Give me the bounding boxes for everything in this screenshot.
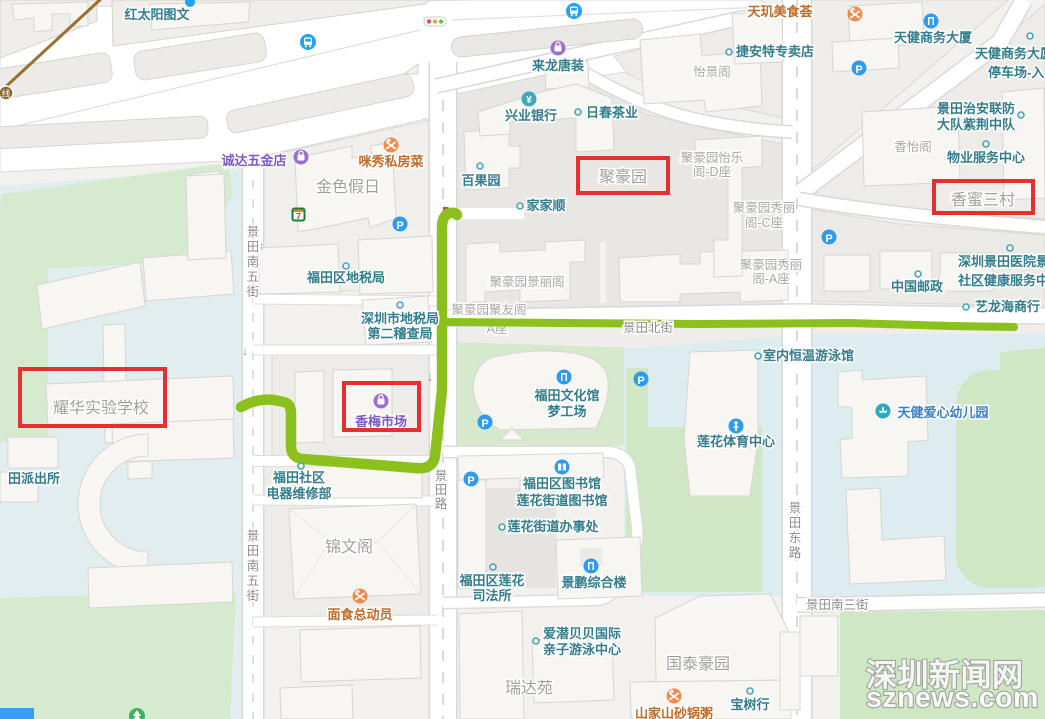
svg-text:福田区地税局: 福田区地税局 xyxy=(306,270,385,285)
svg-text:P: P xyxy=(481,418,488,430)
svg-text:聚豪园秀丽: 聚豪园秀丽 xyxy=(740,257,803,272)
svg-text:天健商务大厦: 天健商务大厦 xyxy=(894,30,973,45)
svg-text:景田东路: 景田东路 xyxy=(789,501,802,560)
svg-text:福田文化馆: 福田文化馆 xyxy=(533,388,599,403)
svg-text:↓: ↓ xyxy=(427,369,434,384)
svg-text:P: P xyxy=(396,220,403,232)
svg-text:电器维修部: 电器维修部 xyxy=(266,486,331,501)
svg-text:捷安特专卖店: 捷安特专卖店 xyxy=(736,44,814,59)
svg-text:景田路: 景田路 xyxy=(435,469,448,511)
svg-text:莲花街道图书馆: 莲花街道图书馆 xyxy=(516,493,607,508)
svg-text:P: P xyxy=(825,233,832,245)
svg-text:大队紫荆中队: 大队紫荆中队 xyxy=(937,117,1016,132)
svg-text:sznews.com: sznews.com xyxy=(866,682,1039,714)
svg-text:社区健康服务中: 社区健康服务中 xyxy=(957,273,1045,288)
svg-text:兴业银行: 兴业银行 xyxy=(505,108,557,123)
svg-text:百果园: 百果园 xyxy=(461,173,500,188)
svg-text:¥: ¥ xyxy=(526,95,532,106)
svg-text:耀华实验学校: 耀华实验学校 xyxy=(53,399,149,417)
svg-text:怡景阁: 怡景阁 xyxy=(693,65,731,79)
svg-text:诚达五金店: 诚达五金店 xyxy=(221,153,286,168)
svg-text:景田南五街: 景田南五街 xyxy=(247,225,260,299)
svg-text:聚豪园: 聚豪园 xyxy=(599,167,647,186)
svg-text:宝树行: 宝树行 xyxy=(730,697,769,712)
svg-text:中国邮政: 中国邮政 xyxy=(891,279,944,294)
svg-text:深圳市地税局: 深圳市地税局 xyxy=(361,311,439,326)
svg-text:停车场-入: 停车场-入 xyxy=(988,65,1044,80)
svg-text:P: P xyxy=(637,375,644,387)
svg-text:阁-D座: 阁-D座 xyxy=(693,164,731,179)
svg-text:深圳景田医院景: 深圳景田医院景 xyxy=(958,254,1045,269)
svg-text:田派出所: 田派出所 xyxy=(8,471,60,486)
svg-text:阁-A座: 阁-A座 xyxy=(752,271,790,286)
svg-text:第二稽查局: 第二稽查局 xyxy=(367,326,432,341)
svg-text:亲子游泳中心: 亲子游泳中心 xyxy=(543,642,621,657)
svg-text:景鹏综合楼: 景鹏综合楼 xyxy=(561,575,626,590)
svg-text:聚豪园聚友阁: 聚豪园聚友阁 xyxy=(451,302,526,317)
svg-text:香怡阁: 香怡阁 xyxy=(894,140,932,154)
svg-text:锦文阁: 锦文阁 xyxy=(325,538,373,556)
svg-text:P: P xyxy=(855,64,862,76)
svg-text:线: 线 xyxy=(1,88,10,99)
svg-text:家家顺: 家家顺 xyxy=(526,198,565,213)
svg-text:爱潜贝贝国际: 爱潜贝贝国际 xyxy=(543,626,621,641)
svg-text:景田南五街: 景田南五街 xyxy=(247,529,260,603)
svg-text:司法所: 司法所 xyxy=(472,588,511,603)
svg-text:聚豪园景丽阁: 聚豪园景丽阁 xyxy=(489,274,564,289)
svg-text:莲花街道办事处: 莲花街道办事处 xyxy=(507,519,599,534)
svg-text:天健商务大厦: 天健商务大厦 xyxy=(975,46,1045,61)
svg-text:福田区图书馆: 福田区图书馆 xyxy=(522,476,601,491)
svg-text:7: 7 xyxy=(296,211,301,221)
svg-text:天玑美食荟: 天玑美食荟 xyxy=(747,4,813,19)
svg-text:红太阳图文: 红太阳图文 xyxy=(124,7,190,22)
svg-text:艺龙海商行: 艺龙海商行 xyxy=(975,299,1040,314)
svg-text:阁-C座: 阁-C座 xyxy=(745,215,783,230)
svg-text:香梅市场: 香梅市场 xyxy=(354,414,407,429)
svg-text:福田区莲花: 福田区莲花 xyxy=(458,573,524,588)
svg-text:室内恒温游泳馆: 室内恒温游泳馆 xyxy=(763,348,854,363)
svg-text:咪秀私房菜: 咪秀私房菜 xyxy=(358,154,423,169)
svg-text:莲花体育中心: 莲花体育中心 xyxy=(697,434,775,449)
svg-text:梦工场: 梦工场 xyxy=(547,404,586,419)
svg-text:天健爱心幼儿园: 天健爱心幼儿园 xyxy=(897,405,988,420)
svg-text:物业服务中心: 物业服务中心 xyxy=(947,150,1025,165)
svg-text:山家山砂锅粥: 山家山砂锅粥 xyxy=(635,706,713,719)
svg-text:聚豪园怡乐: 聚豪园怡乐 xyxy=(681,150,744,165)
svg-text:香蜜三村: 香蜜三村 xyxy=(951,190,1015,209)
svg-text:来龙唐装: 来龙唐装 xyxy=(531,58,584,73)
svg-text:瑞达苑: 瑞达苑 xyxy=(505,679,553,697)
svg-text:↑: ↑ xyxy=(259,239,265,253)
svg-text:日春茶业: 日春茶业 xyxy=(586,105,638,120)
svg-text:P: P xyxy=(467,475,474,487)
svg-text:国泰豪园: 国泰豪园 xyxy=(666,654,730,673)
svg-text:福田社区: 福田社区 xyxy=(272,470,325,485)
svg-text:↓: ↓ xyxy=(242,343,249,358)
svg-text:景田北街: 景田北街 xyxy=(623,321,673,335)
svg-text:面食总动员: 面食总动员 xyxy=(327,607,392,622)
svg-text:金色假日: 金色假日 xyxy=(316,178,380,196)
svg-text:景田治安联防: 景田治安联防 xyxy=(937,101,1015,116)
svg-text:聚豪园秀丽: 聚豪园秀丽 xyxy=(733,200,796,215)
svg-text:景田南三街: 景田南三街 xyxy=(806,597,869,612)
